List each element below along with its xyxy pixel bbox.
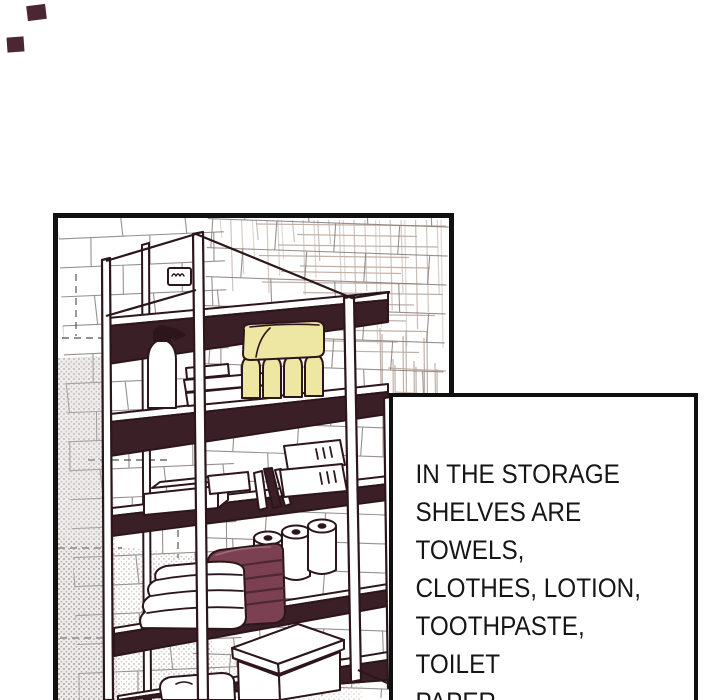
- panel-fragment-left: [6, 36, 24, 52]
- narration-box: IN THE STORAGE SHELVES ARE TOWELS, CLOTH…: [389, 393, 698, 700]
- webtoon-page: IN THE STORAGE SHELVES ARE TOWELS, CLOTH…: [0, 0, 720, 700]
- small-box: [208, 472, 250, 494]
- storage-box-with-lid: [232, 624, 344, 700]
- folded-yellow-towels: [242, 321, 324, 398]
- lotion-pump-bottle: [148, 326, 185, 408]
- shelf-front-left-leg: [102, 258, 113, 700]
- shelf-right-leg: [344, 296, 361, 682]
- canister: [168, 268, 191, 285]
- folded-white-towels: [140, 562, 246, 629]
- slotted-baskets: [280, 440, 347, 497]
- panel-fragment-top: [26, 4, 47, 21]
- narration-text: IN THE STORAGE SHELVES ARE TOWELS, CLOTH…: [393, 397, 664, 700]
